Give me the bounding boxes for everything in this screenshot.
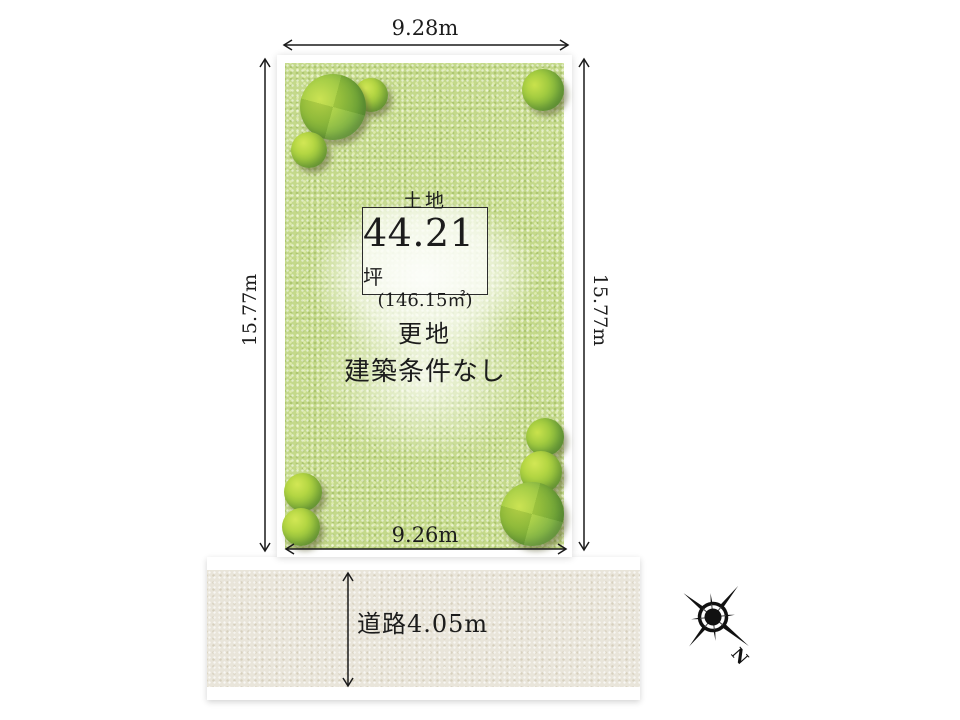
compass-north-label: N bbox=[727, 644, 752, 669]
tree bbox=[291, 132, 327, 168]
tree bbox=[282, 508, 320, 546]
land-area-sqm: (146.15㎡) bbox=[377, 291, 472, 312]
tree bbox=[526, 418, 564, 456]
road-width-label: 道路4.05m bbox=[357, 604, 488, 639]
compass-icon: N bbox=[666, 570, 771, 678]
land-plot-diagram: 土地 44.21坪 (146.15㎡) 更地 建築条件なし 9.28m 9.26… bbox=[0, 0, 960, 720]
left-height-arrow bbox=[258, 56, 272, 554]
status-no-conditions-label: 建築条件なし bbox=[325, 351, 525, 388]
top-width-label: 9.28m bbox=[325, 16, 525, 40]
bottom-width-arrow bbox=[283, 542, 569, 556]
top-width-arrow bbox=[281, 38, 571, 52]
land-area-unit: 坪 bbox=[363, 265, 383, 289]
land-category-label: 土地 bbox=[403, 191, 447, 213]
tree bbox=[522, 69, 564, 111]
right-height-arrow bbox=[577, 56, 591, 553]
compass-rose: N bbox=[666, 570, 771, 678]
right-height-label: 15.77m bbox=[589, 260, 611, 360]
road-width-arrow bbox=[341, 570, 355, 689]
tree bbox=[284, 473, 322, 511]
land-area-value: 44.21 bbox=[363, 211, 474, 255]
tree bbox=[300, 74, 366, 140]
land-area-tsubo: 44.21坪 bbox=[363, 214, 487, 290]
land-info-box: 土地 44.21坪 (146.15㎡) bbox=[362, 207, 488, 295]
status-vacant-label: 更地 bbox=[325, 314, 525, 349]
